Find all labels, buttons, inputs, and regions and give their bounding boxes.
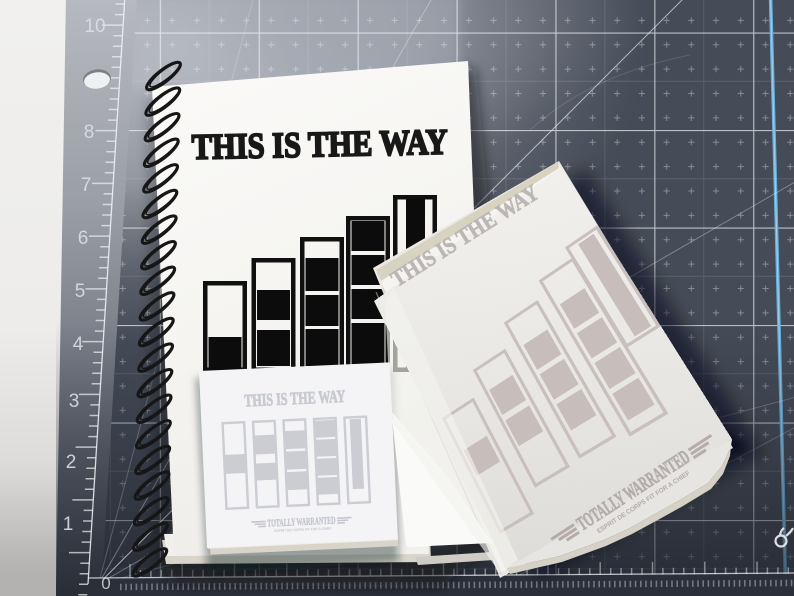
svg-text:TOTALLY WARRANTED: TOTALLY WARRANTED (573, 446, 694, 535)
